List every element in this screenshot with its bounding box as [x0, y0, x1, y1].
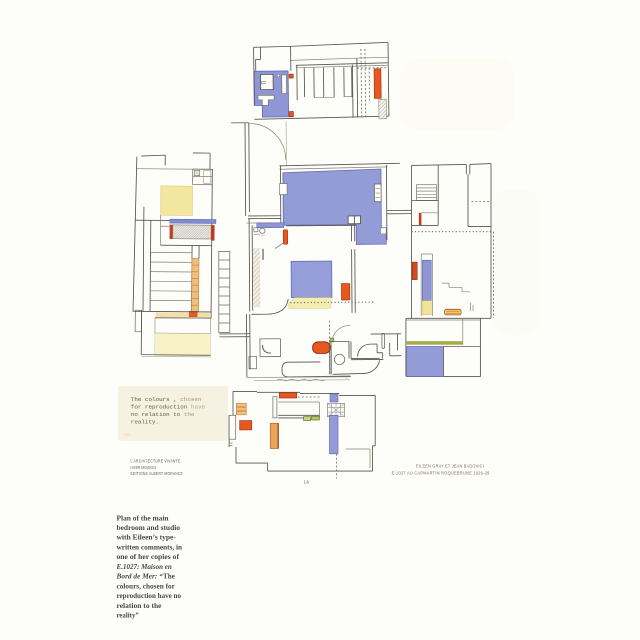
svg-text:reality”: reality”	[117, 612, 140, 620]
svg-text:written comments, in: written comments, in	[117, 544, 183, 552]
svg-text:one of her copies of: one of her copies of	[117, 553, 180, 561]
svg-text:colours, chosen for: colours, chosen for	[117, 582, 176, 590]
svg-text:The colours , chosen: The colours , chosen	[131, 396, 202, 403]
svg-text:reality.: reality.	[131, 419, 159, 426]
svg-text:EDITIONS ALBERT MORANCE: EDITIONS ALBERT MORANCE	[131, 471, 184, 476]
svg-text:EILEEN GRAY ET JEAN BADOVICI: EILEEN GRAY ET JEAN BADOVICI	[416, 464, 484, 469]
svg-text:HIVER MCMXXIX: HIVER MCMXXIX	[131, 465, 157, 470]
svg-text:E-1027 AU CAPMARTIN ROQUEBRUNE: E-1027 AU CAPMARTIN ROQUEBRUNE 1926-29	[392, 470, 490, 475]
svg-text:bedroom and studio: bedroom and studio	[117, 524, 181, 532]
svg-text:16: 16	[304, 480, 310, 485]
svg-text:L'ARCHITECTURE VIVANTE: L'ARCHITECTURE VIVANTE	[131, 459, 181, 464]
svg-text:relation to the: relation to the	[117, 602, 162, 610]
svg-text:E.1027: Maison en: E.1027: Maison en	[116, 563, 172, 571]
svg-text:for reproduction have: for reproduction have	[131, 403, 206, 410]
svg-text:Bord de Mer:: Bord de Mer:	[115, 573, 157, 581]
svg-text:reproduction have no: reproduction have no	[117, 592, 182, 600]
svg-text:with Eileen’s type-: with Eileen’s type-	[117, 534, 177, 542]
svg-text:no relation to the: no relation to the	[131, 411, 195, 418]
svg-text:Plan of the main: Plan of the main	[117, 514, 169, 522]
svg-text:“The: “The	[159, 573, 175, 581]
